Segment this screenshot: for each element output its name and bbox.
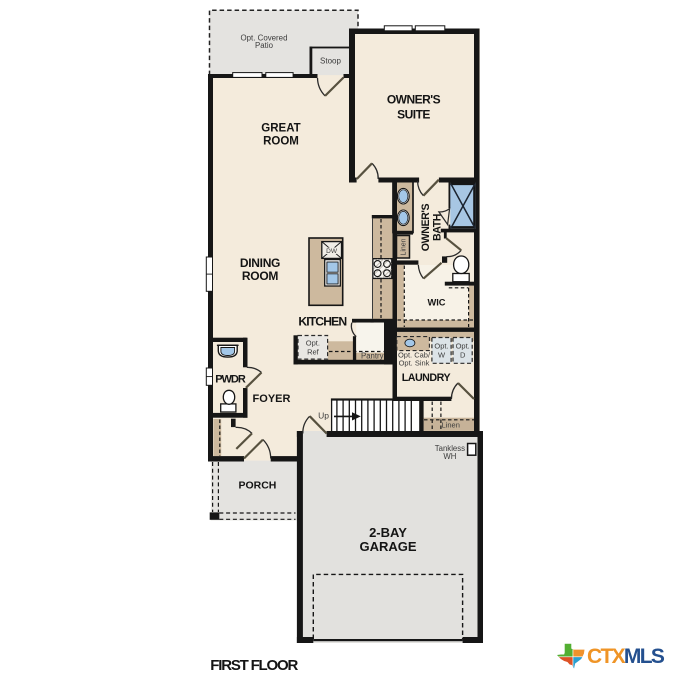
svg-text:PWDR: PWDR [215,374,246,386]
svg-text:D: D [460,350,466,359]
svg-text:DINING: DINING [240,256,280,270]
svg-text:WH: WH [443,452,456,461]
svg-text:OWNER'S: OWNER'S [387,93,441,107]
svg-text:2-BAY: 2-BAY [369,525,407,540]
svg-text:WIC: WIC [427,298,445,308]
svg-text:FOYER: FOYER [253,393,291,405]
svg-text:OWNER'S: OWNER'S [420,203,432,251]
svg-text:DW: DW [326,248,338,255]
svg-text:Stoop: Stoop [320,57,341,66]
svg-text:GREAT: GREAT [261,122,300,134]
svg-text:Opt.: Opt. [456,342,470,351]
svg-text:GARAGE: GARAGE [359,539,416,554]
svg-text:ROOM: ROOM [263,136,299,148]
svg-text:Linen: Linen [401,238,408,255]
svg-text:CTXMLS: CTXMLS [587,645,665,668]
svg-text:ROOM: ROOM [242,269,278,283]
svg-text:Up: Up [318,411,329,421]
svg-text:Pantry: Pantry [361,351,384,360]
svg-text:PORCH: PORCH [238,480,276,492]
svg-text:Opt.: Opt. [434,342,448,351]
svg-text:Patio: Patio [255,41,274,50]
svg-text:Linen: Linen [442,421,460,430]
svg-text:Ref: Ref [307,347,320,356]
svg-text:FIRST FLOOR: FIRST FLOOR [210,657,298,674]
svg-text:LAUNDRY: LAUNDRY [402,372,451,384]
svg-text:Opt. Sink: Opt. Sink [399,359,430,368]
svg-text:BATH: BATH [432,214,444,241]
svg-text:W: W [438,350,446,359]
svg-text:SUITE: SUITE [397,107,430,121]
svg-text:KITCHEN: KITCHEN [298,315,346,329]
